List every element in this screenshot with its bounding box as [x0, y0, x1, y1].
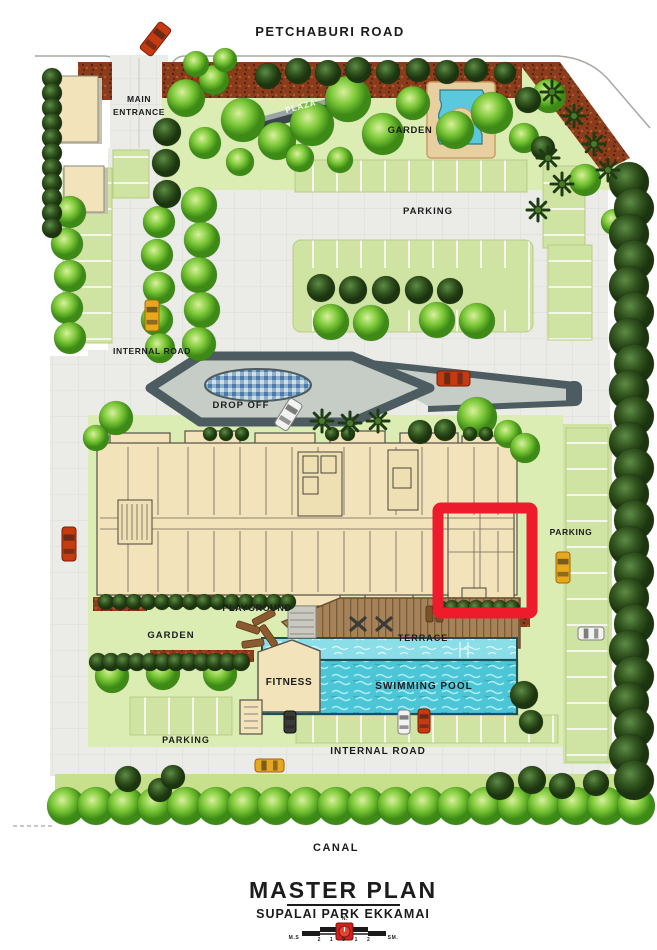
tree-icon	[42, 218, 62, 238]
tree-icon	[486, 772, 514, 800]
car-icon	[578, 627, 604, 640]
label-parking-right: PARKING	[550, 528, 593, 537]
tree-icon	[353, 305, 389, 341]
tree-icon	[126, 594, 142, 610]
car-icon	[398, 710, 410, 734]
tree-icon	[154, 594, 170, 610]
tree-icon	[396, 86, 430, 120]
palm-tree-icon	[583, 133, 605, 155]
label-garden-bottom: GARDEN	[147, 631, 194, 641]
palm-tree-icon	[551, 173, 573, 195]
tree-icon	[519, 710, 543, 734]
label-terrace: TERRACE	[398, 634, 449, 643]
tree-icon	[405, 276, 433, 304]
tree-icon	[583, 770, 609, 796]
tree-icon	[406, 58, 430, 82]
tree-icon	[168, 594, 184, 610]
car-icon	[62, 527, 76, 561]
car-icon	[139, 21, 172, 57]
tree-icon	[479, 427, 493, 441]
label-playground: PLAYGROUND	[222, 604, 291, 613]
scale-right-label: SM.	[388, 936, 399, 941]
tree-icon	[515, 87, 541, 113]
label-swimming-pool: SWIMMING POOL	[375, 682, 472, 692]
tree-icon	[226, 148, 254, 176]
palm-tree-icon	[563, 105, 585, 127]
tree-icon	[115, 766, 141, 792]
tree-icon	[143, 206, 175, 238]
tree-icon	[408, 420, 432, 444]
tree-icon	[313, 304, 349, 340]
tree-icon	[435, 60, 459, 84]
car-icon	[418, 709, 430, 733]
title-divider	[287, 904, 400, 906]
tree-icon	[518, 766, 546, 794]
tree-icon	[140, 594, 156, 610]
palm-tree-icon	[339, 412, 361, 434]
car-icon	[255, 759, 284, 772]
tree-icon	[161, 765, 185, 789]
tree-icon	[549, 773, 575, 799]
tree-icon	[510, 681, 538, 709]
tree-icon	[213, 48, 237, 72]
label-main-entrance-line1: MAIN	[127, 95, 151, 104]
tree-icon	[307, 274, 335, 302]
palm-tree-icon	[367, 410, 389, 432]
palm-tree-icon	[541, 81, 563, 103]
tree-icon	[219, 427, 233, 441]
tree-icon	[463, 427, 477, 441]
tree-icon	[167, 79, 205, 117]
tree-icon	[181, 257, 217, 293]
tree-icon	[189, 127, 221, 159]
car-icon	[556, 552, 570, 583]
palm-tree-icon	[537, 147, 559, 169]
tree-icon	[153, 118, 181, 146]
tree-icon	[345, 57, 371, 83]
tree-icon	[419, 302, 455, 338]
tree-icon	[255, 63, 281, 89]
tree-icon	[315, 60, 341, 86]
scale-left-label: M.S	[289, 936, 300, 941]
tree-icon	[464, 58, 488, 82]
tree-icon	[285, 58, 311, 84]
tree-icon	[141, 239, 173, 271]
label-parking-top: PARKING	[403, 207, 453, 217]
tree-icon	[182, 594, 198, 610]
label-parking-bottom: PARKING	[162, 736, 210, 745]
label-petchaburi-road: PETCHABURI ROAD	[255, 25, 405, 38]
tree-icon	[437, 278, 463, 304]
tree-icon	[183, 51, 209, 77]
tree-icon	[494, 62, 516, 84]
tree-icon	[221, 98, 265, 142]
tree-icon	[112, 594, 128, 610]
tree-icon	[184, 222, 220, 258]
car-icon	[145, 300, 159, 331]
tree-icon	[143, 272, 175, 304]
label-drop-off: DROP OFF	[213, 401, 270, 411]
tree-icon	[325, 427, 339, 441]
tree-icon	[98, 594, 114, 610]
tree-icon	[232, 653, 250, 671]
label-canal: CANAL	[313, 843, 359, 854]
label-internal-road-bottom: INTERNAL ROAD	[330, 747, 426, 757]
tree-icon	[235, 427, 249, 441]
tree-icon	[372, 276, 400, 304]
car-icon	[437, 371, 470, 386]
tree-icon	[54, 260, 86, 292]
car-icon	[284, 711, 296, 733]
label-fitness: FITNESS	[266, 678, 312, 688]
label-internal-road-top: INTERNAL ROAD	[113, 347, 191, 356]
tree-icon	[184, 292, 220, 328]
tree-icon	[51, 292, 83, 324]
site-plan-drawing	[0, 0, 657, 950]
tree-icon	[203, 427, 217, 441]
plan-title: MASTER PLAN	[249, 879, 437, 902]
residential-building-floorplan	[97, 431, 517, 606]
tree-icon	[153, 180, 181, 208]
pool-steps-walkway	[288, 606, 316, 638]
palm-tree-icon	[527, 199, 549, 221]
scale-north-label: N.	[342, 917, 348, 922]
tree-icon	[614, 760, 654, 800]
tree-icon	[196, 594, 212, 610]
palm-tree-icon	[597, 159, 619, 181]
label-garden-top: GARDEN	[388, 126, 433, 136]
tree-icon	[54, 322, 86, 354]
tree-icon	[376, 60, 400, 84]
label-main-entrance-line2: ENTRANCE	[113, 108, 165, 117]
tree-icon	[436, 111, 474, 149]
tree-icon	[339, 276, 367, 304]
scale-ticks: 2 1 0 1 2	[318, 938, 371, 943]
tree-icon	[286, 144, 314, 172]
tree-icon	[83, 425, 109, 451]
tree-icon	[181, 187, 217, 223]
tree-icon	[471, 92, 513, 134]
tree-icon	[152, 149, 180, 177]
master-plan-canvas: PETCHABURI ROAD MAIN ENTRANCE PLAZA GARD…	[0, 0, 657, 950]
palm-tree-icon	[311, 410, 333, 432]
tree-icon	[434, 419, 456, 441]
tree-icon	[510, 433, 540, 463]
tree-icon	[327, 147, 353, 173]
tree-icon	[459, 303, 495, 339]
